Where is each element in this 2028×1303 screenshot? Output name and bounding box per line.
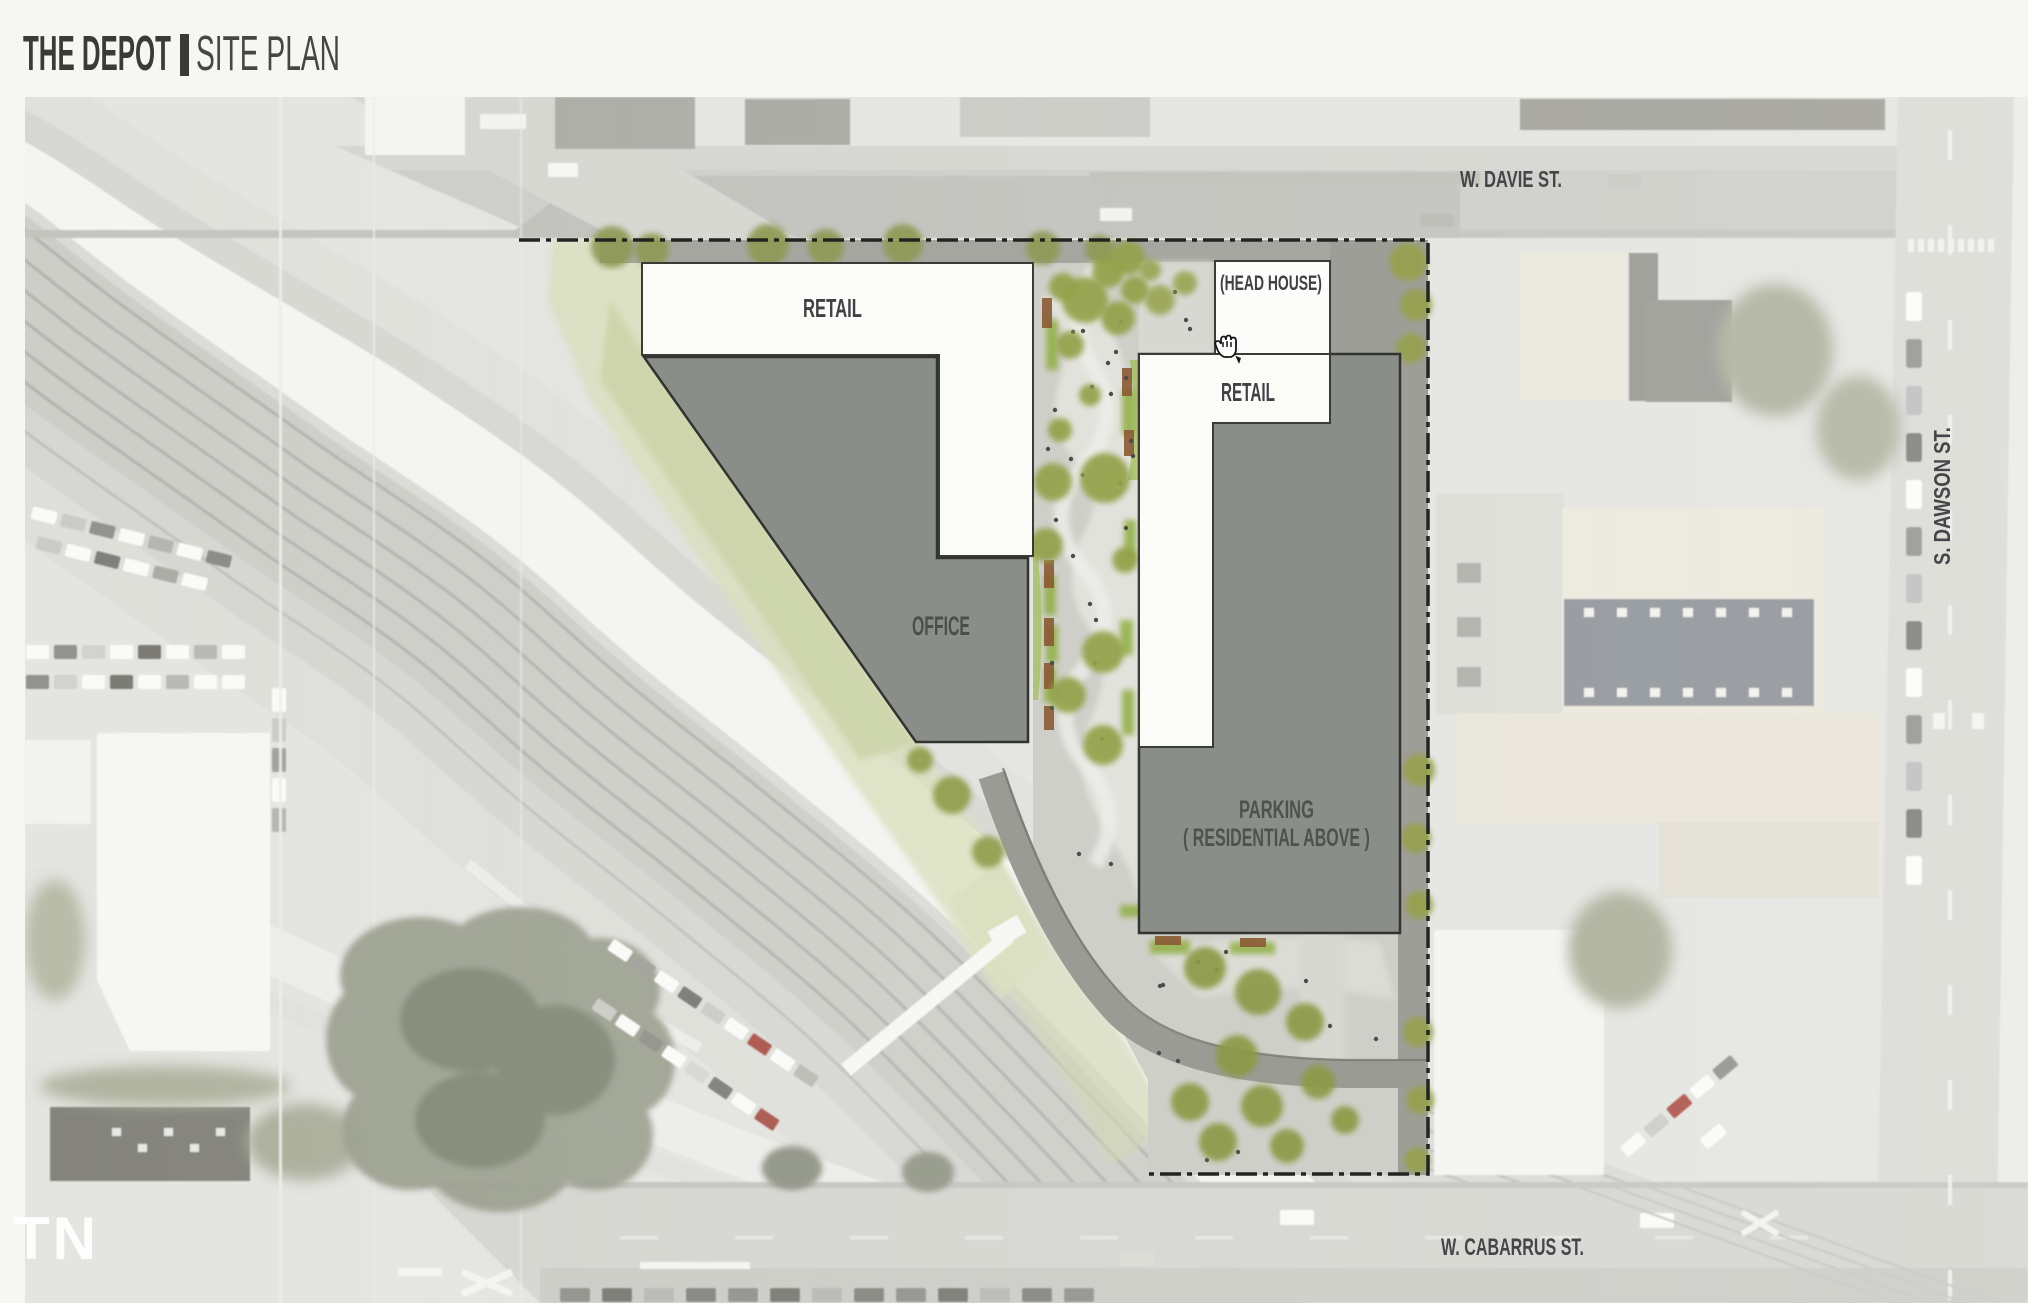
svg-text:W. CABARRUS ST.: W. CABARRUS ST. — [1441, 1235, 1584, 1261]
svg-text:TN: TN — [13, 1205, 99, 1272]
svg-text:RETAIL: RETAIL — [1221, 378, 1275, 407]
svg-text:( RESIDENTIAL ABOVE ): ( RESIDENTIAL ABOVE ) — [1183, 825, 1370, 852]
svg-text:SITE PLAN: SITE PLAN — [196, 27, 340, 81]
svg-text:S. DAWSON ST.: S. DAWSON ST. — [1930, 427, 1955, 565]
svg-text:RETAIL: RETAIL — [803, 293, 862, 323]
svg-text:W. DAVIE ST.: W. DAVIE ST. — [1460, 168, 1562, 193]
svg-text:OFFICE: OFFICE — [912, 611, 970, 642]
svg-text:(HEAD HOUSE): (HEAD HOUSE) — [1220, 271, 1322, 295]
svg-text:PARKING: PARKING — [1239, 797, 1314, 824]
svg-text:THE DEPOT: THE DEPOT — [23, 27, 171, 81]
